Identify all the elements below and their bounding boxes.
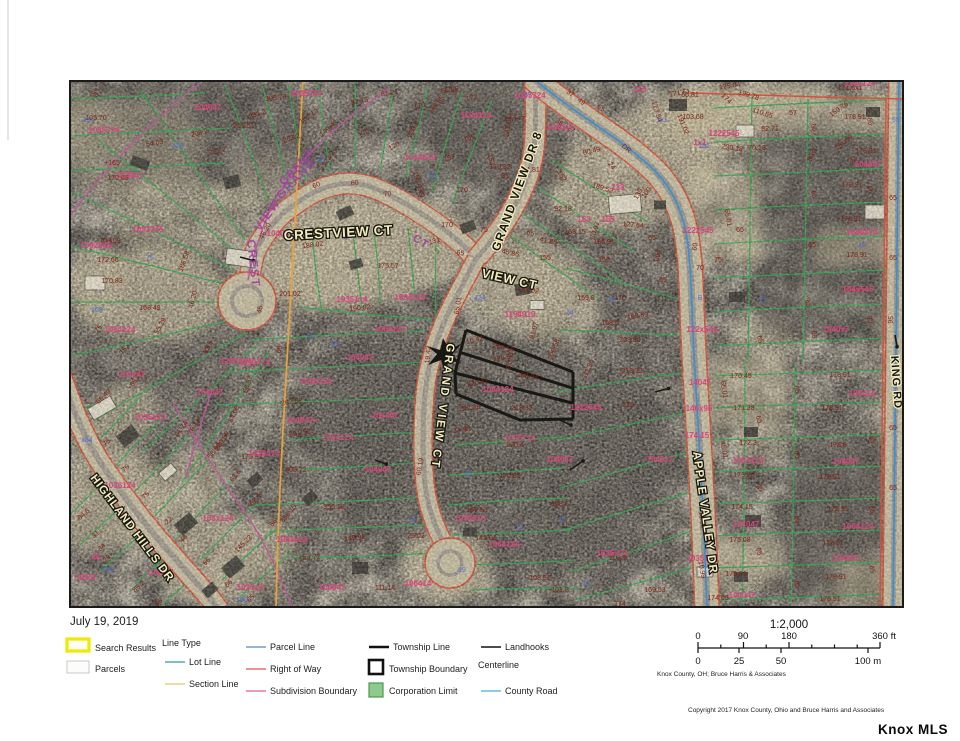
svg-text:15: 15 — [758, 297, 766, 304]
svg-text:75: 75 — [714, 257, 722, 264]
svg-text:81: 81 — [501, 173, 509, 180]
svg-text:186.91: 186.91 — [593, 239, 615, 246]
svg-text:103.68: 103.68 — [682, 114, 704, 121]
svg-text:10357: 10357 — [75, 573, 98, 582]
svg-text:Knox MLS: Knox MLS — [878, 722, 948, 737]
svg-text:Township Line: Township Line — [393, 642, 450, 652]
svg-text:1064124: 1064124 — [488, 540, 520, 549]
svg-text:174.15: 174.15 — [685, 431, 710, 440]
svg-text:1064124: 1064124 — [842, 522, 874, 531]
svg-text:360 ft: 360 ft — [872, 631, 896, 642]
svg-text:178.91: 178.91 — [855, 148, 877, 155]
svg-text:Search Results: Search Results — [95, 643, 157, 653]
svg-text:57: 57 — [789, 110, 797, 117]
svg-text:175.08: 175.08 — [729, 537, 751, 544]
svg-text:1094019: 1094019 — [394, 293, 426, 302]
svg-text:170.45: 170.45 — [730, 373, 752, 380]
svg-text:178.91: 178.91 — [819, 474, 841, 481]
svg-text:65: 65 — [648, 235, 656, 242]
svg-text:122x545: 122x545 — [686, 325, 718, 334]
svg-text:50: 50 — [776, 656, 787, 667]
svg-text:46: 46 — [428, 173, 436, 180]
svg-text:174.15: 174.15 — [731, 504, 753, 511]
svg-text:169.8: 169.8 — [577, 295, 595, 302]
svg-text:218.32: 218.32 — [511, 405, 533, 412]
svg-text:Landhooks: Landhooks — [505, 642, 550, 652]
svg-text:65: 65 — [456, 249, 465, 257]
svg-text:106414: 106414 — [849, 389, 876, 398]
svg-text:226: 226 — [622, 402, 634, 409]
svg-text:Copyright 2017 Knox County, Oh: Copyright 2017 Knox County, Ohio and Bru… — [688, 707, 885, 714]
svg-text:356.18: 356.18 — [323, 504, 345, 511]
svg-text:82.71: 82.71 — [761, 126, 779, 133]
svg-text:10: 10 — [858, 242, 866, 249]
svg-text:453: 453 — [172, 143, 184, 150]
svg-text:44: 44 — [566, 310, 574, 317]
svg-text:Lot Line: Lot Line — [189, 657, 221, 667]
svg-text:168.6: 168.6 — [601, 320, 619, 327]
svg-text:1164124: 1164124 — [461, 111, 492, 120]
svg-text:150: 150 — [598, 257, 610, 264]
svg-text:1222545: 1222545 — [708, 129, 740, 138]
svg-text:172.3: 172.3 — [739, 440, 757, 447]
svg-text:1035724: 1035724 — [88, 126, 120, 135]
svg-text:1290474: 1290474 — [238, 358, 270, 367]
svg-text:169.53: 169.53 — [644, 587, 666, 594]
svg-text:171.38: 171.38 — [733, 405, 755, 412]
svg-text:178.91: 178.91 — [822, 540, 844, 547]
svg-text:1064124: 1064124 — [322, 433, 354, 442]
svg-text:255.51: 255.51 — [233, 123, 255, 130]
svg-text:Township Boundary: Township Boundary — [389, 664, 468, 674]
svg-text:175.57: 175.57 — [377, 263, 399, 270]
svg-text:0: 0 — [695, 656, 700, 667]
svg-text:65: 65 — [889, 195, 897, 202]
svg-text:169.53: 169.53 — [466, 507, 488, 514]
svg-text:1094019: 1094019 — [454, 514, 486, 523]
svg-text:104x47: 104x47 — [119, 370, 146, 379]
svg-text:203.90: 203.90 — [619, 337, 641, 344]
svg-text:60: 60 — [350, 179, 359, 187]
svg-text:19: 19 — [408, 517, 416, 524]
svg-text:104047: 104047 — [833, 457, 860, 466]
svg-text:1222545: 1222545 — [570, 403, 602, 412]
svg-text:100 m: 100 m — [855, 656, 881, 667]
svg-text:57: 57 — [524, 92, 532, 99]
svg-text:104047: 104047 — [347, 353, 374, 362]
svg-text:Line Type: Line Type — [162, 638, 201, 648]
svg-text:46: 46 — [608, 297, 616, 304]
svg-text:1040x7: 1040x7 — [823, 325, 850, 334]
svg-text:Knox County, OH; Bruce Harris: Knox County, OH; Bruce Harris & Associat… — [657, 671, 787, 678]
svg-text:1040474: 1040474 — [846, 228, 878, 237]
svg-text:178.91: 178.91 — [819, 596, 841, 603]
svg-text:104047: 104047 — [833, 554, 860, 563]
svg-text:168.49: 168.49 — [139, 305, 161, 312]
svg-text:65: 65 — [808, 242, 816, 249]
svg-text:0: 0 — [695, 631, 700, 642]
svg-text:104047: 104047 — [319, 583, 346, 592]
svg-text:218.32: 218.32 — [621, 368, 643, 375]
svg-text:1222545: 1222545 — [682, 226, 714, 235]
svg-text:1064124: 1064124 — [104, 325, 136, 334]
svg-text:104047: 104047 — [547, 123, 574, 132]
svg-text:104047: 104047 — [197, 388, 224, 397]
svg-text:108: 108 — [91, 307, 103, 314]
svg-text:104047: 104047 — [117, 171, 144, 180]
svg-text:45: 45 — [256, 305, 264, 314]
svg-text:92.18: 92.18 — [554, 206, 572, 213]
svg-text:104047: 104047 — [733, 520, 760, 529]
svg-text:173.23: 173.23 — [733, 472, 755, 479]
svg-text:65: 65 — [659, 277, 667, 284]
svg-text:170.83: 170.83 — [101, 278, 123, 285]
svg-text:101.8: 101.8 — [551, 587, 569, 594]
svg-text:1035724: 1035724 — [300, 377, 332, 386]
svg-text:146x96: 146x96 — [686, 404, 713, 413]
svg-text:1035x4: 1035x4 — [237, 583, 264, 592]
svg-text:10: 10 — [558, 517, 566, 524]
svg-text:19: 19 — [458, 567, 466, 574]
svg-text:1064124: 1064124 — [482, 385, 514, 394]
svg-text:Parcel Line: Parcel Line — [270, 642, 315, 652]
svg-text:County Road: County Road — [505, 686, 558, 696]
svg-text:170.35: 170.35 — [499, 473, 521, 480]
svg-text:178.91: 178.91 — [827, 506, 849, 513]
svg-text:104047: 104047 — [547, 455, 574, 464]
svg-text:65: 65 — [892, 117, 900, 124]
svg-text:191: 191 — [698, 143, 710, 150]
svg-text:46: 46 — [92, 553, 101, 562]
svg-text:1064124: 1064124 — [732, 456, 764, 465]
svg-text:70: 70 — [696, 265, 704, 272]
svg-text:Section Line: Section Line — [189, 679, 239, 689]
svg-text:+165: +165 — [104, 160, 120, 167]
svg-text:155: 155 — [539, 255, 551, 262]
svg-text:172.66: 172.66 — [97, 257, 119, 264]
svg-text:178.91: 178.91 — [840, 216, 862, 223]
svg-text:175.91: 175.91 — [725, 571, 747, 578]
svg-text:July 19, 2019: July 19, 2019 — [70, 616, 138, 628]
svg-text:25: 25 — [734, 656, 745, 667]
svg-text:220.4: 220.4 — [506, 442, 524, 449]
svg-text:Parcels: Parcels — [95, 664, 126, 674]
svg-text:201.02: 201.02 — [279, 291, 301, 298]
svg-text:104047x: 104047x — [286, 416, 318, 425]
svg-text:10x4019: 10x4019 — [404, 153, 436, 162]
svg-text:65: 65 — [736, 227, 744, 234]
svg-text:25.02: 25.02 — [407, 533, 425, 540]
svg-text:178.91: 178.91 — [841, 182, 863, 189]
svg-text:1035724: 1035724 — [504, 434, 536, 443]
svg-text:180: 180 — [781, 631, 797, 642]
svg-text:65: 65 — [889, 485, 897, 492]
svg-text:174.09: 174.09 — [707, 595, 729, 602]
svg-text:1064x24: 1064x24 — [276, 535, 308, 544]
svg-text:70.13: 70.13 — [748, 145, 766, 152]
svg-text:104x545: 104x545 — [842, 285, 874, 294]
svg-text:163.15: 163.15 — [564, 229, 586, 236]
svg-text:170: 170 — [456, 187, 468, 194]
svg-text:65: 65 — [889, 425, 897, 432]
svg-text:104047: 104047 — [855, 160, 882, 169]
svg-text:108.31: 108.31 — [529, 575, 551, 582]
svg-text:1035x24: 1035x24 — [134, 413, 166, 422]
svg-text:178.91: 178.91 — [825, 574, 847, 581]
svg-text:111.14: 111.14 — [375, 585, 395, 592]
svg-text:178.91: 178.91 — [844, 114, 866, 121]
svg-text:1x1: 1x1 — [656, 117, 667, 124]
svg-text:178.91: 178.91 — [846, 252, 868, 259]
svg-text:106414: 106414 — [405, 579, 432, 588]
svg-text:14047: 14047 — [689, 378, 712, 387]
svg-text:Corporation Limit: Corporation Limit — [389, 686, 458, 696]
svg-text:1:2,000: 1:2,000 — [770, 619, 808, 631]
svg-text:75: 75 — [146, 255, 154, 262]
svg-text:81: 81 — [318, 157, 326, 164]
svg-text:46: 46 — [330, 342, 338, 349]
svg-text:1030474: 1030474 — [248, 449, 280, 458]
svg-text:Centerline: Centerline — [478, 660, 519, 670]
svg-text:Right of Way: Right of Way — [270, 664, 322, 674]
svg-text:178.91: 178.91 — [829, 372, 851, 379]
svg-text:104047: 104047 — [729, 591, 756, 600]
svg-text:434: 434 — [474, 295, 486, 302]
svg-text:1035724: 1035724 — [290, 89, 322, 98]
svg-text:1092245: 1092245 — [132, 225, 164, 234]
svg-text:10: 10 — [464, 471, 472, 478]
svg-text:153: 153 — [577, 215, 591, 224]
svg-text:90: 90 — [738, 631, 749, 642]
svg-text:65: 65 — [809, 330, 817, 339]
svg-text:170: 170 — [614, 295, 626, 302]
svg-text:15x: 15x — [82, 117, 94, 124]
svg-text:170: 170 — [441, 222, 453, 229]
svg-text:16: 16 — [582, 581, 590, 588]
svg-text:75: 75 — [417, 192, 425, 199]
svg-text:x3: x3 — [516, 525, 524, 532]
svg-text:x84: x84 — [81, 437, 92, 444]
svg-text:168.6: 168.6 — [551, 501, 569, 508]
svg-text:10x407: 10x407 — [372, 411, 399, 420]
svg-text:1035x24: 1035x24 — [596, 549, 628, 558]
svg-text:1040x7: 1040x7 — [647, 455, 674, 464]
svg-text:B: B — [698, 295, 703, 302]
svg-text:155: 155 — [601, 215, 615, 224]
svg-text:104047: 104047 — [195, 103, 222, 112]
svg-text:178.91: 178.91 — [821, 405, 843, 412]
svg-text:103x124: 103x124 — [202, 514, 234, 523]
svg-text:166: 166 — [102, 567, 114, 574]
svg-text:166: 166 — [236, 597, 248, 604]
svg-text:1194019: 1194019 — [505, 310, 536, 319]
svg-text:65: 65 — [889, 255, 897, 262]
svg-text:10351x4: 10351x4 — [336, 295, 368, 304]
svg-text:Subdivision Boundary: Subdivision Boundary — [270, 686, 358, 696]
svg-text:1064124: 1064124 — [374, 325, 406, 334]
svg-text:178.6: 178.6 — [829, 442, 847, 449]
svg-text:60: 60 — [691, 242, 699, 251]
svg-text:95: 95 — [888, 316, 896, 324]
svg-text:1x: 1x — [306, 333, 314, 340]
svg-text:403.72: 403.72 — [285, 467, 307, 474]
svg-text:1092245: 1092245 — [80, 241, 112, 250]
svg-text:113: 113 — [612, 183, 625, 192]
svg-text:104047: 104047 — [365, 465, 392, 474]
svg-text:115: 115 — [634, 85, 647, 94]
svg-text:75: 75 — [480, 227, 488, 234]
